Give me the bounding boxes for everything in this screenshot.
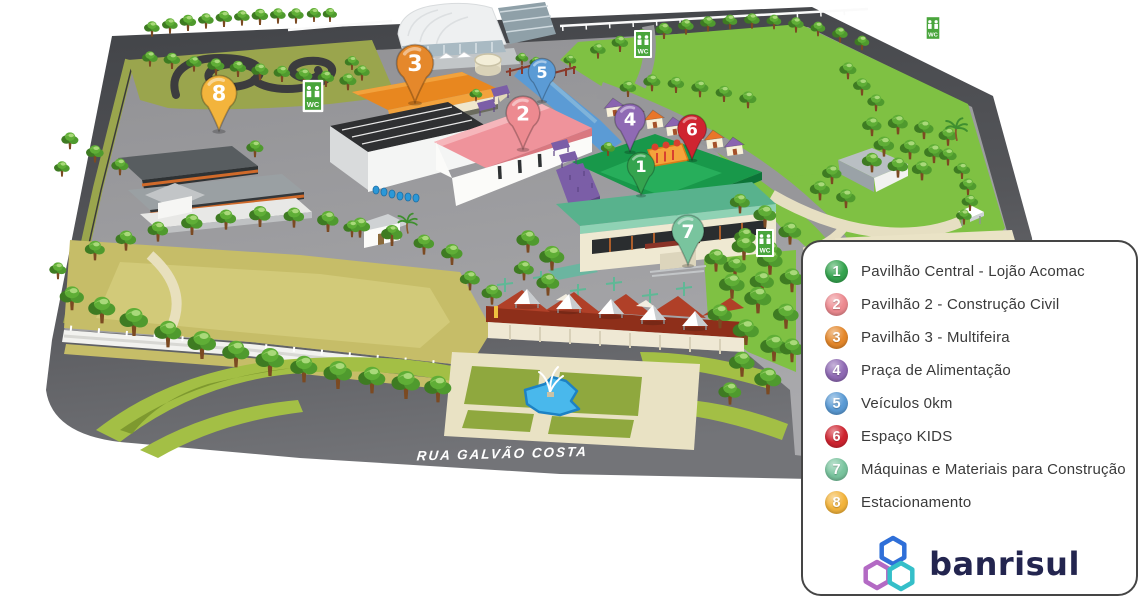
wc-sign: WC <box>756 229 774 257</box>
svg-text:WC: WC <box>928 33 939 39</box>
legend-item-label: Estacionamento <box>861 494 971 511</box>
wc-sign: WC <box>634 30 652 58</box>
svg-text:WC: WC <box>638 49 649 56</box>
legend-item-2: 2Pavilhão 2 - Construção Civil <box>825 288 1126 321</box>
legend-number-badge: 8 <box>825 491 848 514</box>
svg-text:WC: WC <box>307 100 320 109</box>
svg-text:1: 1 <box>635 157 646 176</box>
legend-item-label: Pavilhão 3 - Multifeira <box>861 329 1010 346</box>
entrance-plaza <box>444 352 700 450</box>
tree <box>270 8 286 23</box>
tree <box>162 18 178 33</box>
tree <box>307 8 321 22</box>
legend-item-5: 5Veículos 0km <box>825 387 1126 420</box>
svg-text:WC: WC <box>760 248 771 255</box>
svg-text:5: 5 <box>536 63 547 82</box>
legend-item-label: Máquinas e Materiais para Construção <box>861 461 1126 478</box>
legend-item-1: 1Pavilhão Central - Lojão Acomac <box>825 255 1126 288</box>
tree <box>216 11 233 27</box>
legend-item-label: Espaço KIDS <box>861 428 952 445</box>
legend-item-7: 7Máquinas e Materiais para Construção <box>825 453 1126 486</box>
svg-text:2: 2 <box>516 101 530 125</box>
wc-sign: WC <box>925 15 941 40</box>
legend-item-label: Praça de Alimentação <box>861 362 1011 379</box>
legend-number-badge: 5 <box>825 392 848 415</box>
legend-number-badge: 2 <box>825 293 848 316</box>
legend-item-label: Pavilhão Central - Lojão Acomac <box>861 263 1085 280</box>
banrisul-logo: banrisul <box>825 535 1126 593</box>
legend-number-badge: 6 <box>825 425 848 448</box>
tree <box>61 132 78 149</box>
svg-text:7: 7 <box>681 221 694 243</box>
round-tank <box>475 54 501 76</box>
legend-number-badge: 4 <box>825 359 848 382</box>
banrisul-logo-text: banrisul <box>929 545 1080 583</box>
legend-item-4: 4Praça de Alimentação <box>825 354 1126 387</box>
tree <box>180 15 197 31</box>
fairground-map-page: WC WC WC WC RUA GALVÃO COSTA 1 2 3 4 5 6… <box>0 0 1142 600</box>
tree <box>54 161 70 176</box>
legend-item-8: 8Estacionamento <box>825 486 1126 519</box>
svg-text:8: 8 <box>212 82 227 106</box>
legend-list: 1Pavilhão Central - Lojão Acomac2Pavilhã… <box>825 255 1126 519</box>
legend-number-badge: 1 <box>825 260 848 283</box>
legend-number-badge: 3 <box>825 326 848 349</box>
tree <box>234 10 250 25</box>
tree <box>49 262 66 279</box>
tree <box>288 8 304 23</box>
legend-item-3: 3Pavilhão 3 - Multifeira <box>825 321 1126 354</box>
legend-number-badge: 7 <box>825 458 848 481</box>
legend-item-6: 6Espaço KIDS <box>825 420 1126 453</box>
svg-text:3: 3 <box>407 52 422 77</box>
legend-item-label: Veículos 0km <box>861 395 953 412</box>
svg-text:4: 4 <box>624 110 637 131</box>
tree <box>252 9 269 25</box>
banrisul-hexagons-icon <box>857 535 921 593</box>
tree <box>323 8 337 22</box>
tree <box>198 13 214 28</box>
wc-sign: WC <box>303 80 324 112</box>
legend-panel: 1Pavilhão Central - Lojão Acomac2Pavilhã… <box>801 240 1138 596</box>
svg-text:6: 6 <box>686 120 698 140</box>
legend-item-label: Pavilhão 2 - Construção Civil <box>861 296 1059 313</box>
